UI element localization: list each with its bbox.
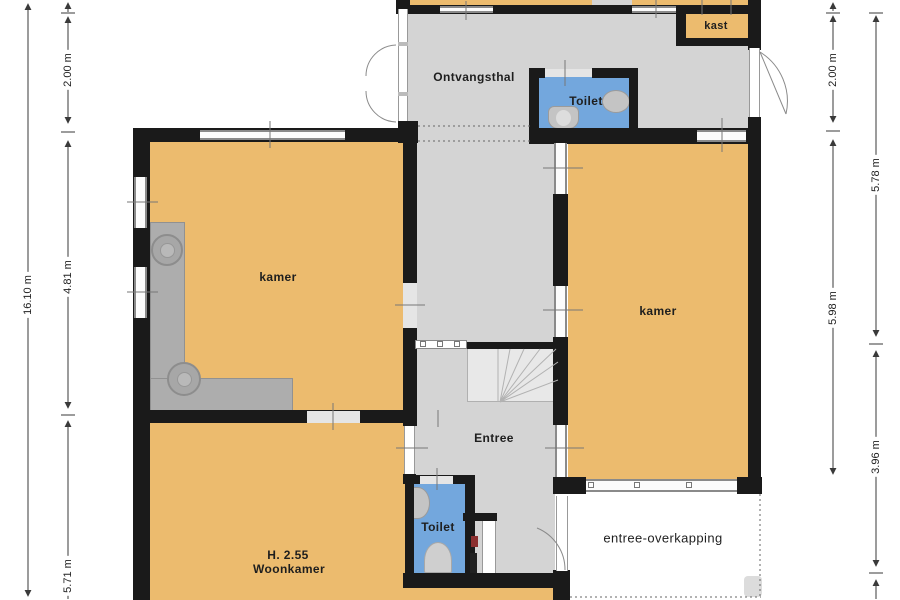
room-label-woonkamer-height: H. 2.55: [267, 548, 309, 562]
floor-plan: Ontvangsthal kast Toilet kamer kamer Ent…: [0, 0, 900, 600]
wall: [403, 414, 417, 426]
wall: [396, 0, 410, 9]
wall: [403, 573, 570, 588]
wall: [629, 68, 638, 129]
woonkamer-floor-strip: [405, 586, 570, 600]
meter-panel: [470, 553, 477, 573]
wall: [463, 513, 497, 521]
wall: [467, 342, 558, 349]
front-door: [556, 496, 568, 571]
doormat-icon: [744, 576, 762, 597]
room-label-kast: kast: [704, 20, 728, 32]
wall: [748, 144, 761, 494]
wall-kast: [676, 38, 752, 46]
wc-seat-icon: [556, 110, 571, 126]
room-label-kamer-right: kamer: [639, 304, 676, 318]
balustrade-post: [454, 341, 460, 347]
door-opening: [307, 411, 360, 423]
dimension-left-middle: 4.81 m: [62, 257, 74, 297]
wall: [133, 422, 150, 600]
wall: [553, 337, 568, 425]
window: [134, 177, 147, 228]
side-door: [749, 48, 760, 119]
wall: [568, 477, 586, 494]
room-label-entree: Entree: [474, 431, 514, 445]
window-mullion: [634, 482, 640, 488]
wall: [403, 142, 417, 283]
room-label-toilet-bottom: Toilet: [421, 520, 455, 534]
window-divider: [398, 42, 408, 46]
balustrade-post: [420, 341, 426, 347]
window: [697, 130, 746, 142]
window-band: [586, 479, 737, 492]
washbasin-icon: [151, 234, 183, 266]
balustrade-post: [437, 341, 443, 347]
dimension-left-top: 2.00 m: [62, 50, 74, 90]
door: [404, 426, 415, 474]
wc-icon: [424, 542, 452, 573]
meterkast-door: [482, 521, 496, 573]
dimension-right-outer-top: 5.78 m: [870, 155, 882, 195]
wall: [405, 475, 414, 573]
window-mullion: [588, 482, 594, 488]
window-divider: [398, 92, 408, 96]
room-label-woonkamer: Woonkamer: [253, 562, 325, 576]
window: [200, 130, 345, 140]
dimension-left-total: 16.10 m: [22, 272, 34, 318]
entry-door: [398, 9, 408, 123]
window: [440, 6, 493, 13]
wall: [553, 194, 568, 286]
dimension-left-bottom: 5.71 m: [62, 556, 74, 596]
window-mullion: [686, 482, 692, 488]
meter-unit: [471, 536, 478, 547]
door-opening: [545, 69, 592, 77]
door-opening: [403, 283, 417, 328]
window: [554, 286, 567, 337]
room-label-entree-overkapping: entree-overkapping: [603, 531, 722, 546]
wall: [529, 68, 545, 78]
window: [134, 267, 147, 318]
room-label-ontvangsthal: Ontvangsthal: [433, 70, 514, 84]
window: [555, 425, 567, 477]
room-label-toilet-top: Toilet: [569, 94, 603, 108]
window: [554, 143, 567, 194]
wall: [133, 410, 417, 423]
sink-icon: [602, 90, 630, 113]
window: [632, 6, 680, 13]
stairs: [467, 348, 557, 402]
room-label-kamer-left: kamer: [259, 270, 296, 284]
washbasin-icon: [167, 362, 201, 396]
dimension-right-outer-bottom: 3.96 m: [870, 437, 882, 477]
door-opening: [420, 476, 453, 484]
dimension-right-inner-top: 2.00 m: [827, 50, 839, 90]
dimension-right-inner-bottom: 5.98 m: [827, 288, 839, 328]
wall: [553, 570, 570, 600]
